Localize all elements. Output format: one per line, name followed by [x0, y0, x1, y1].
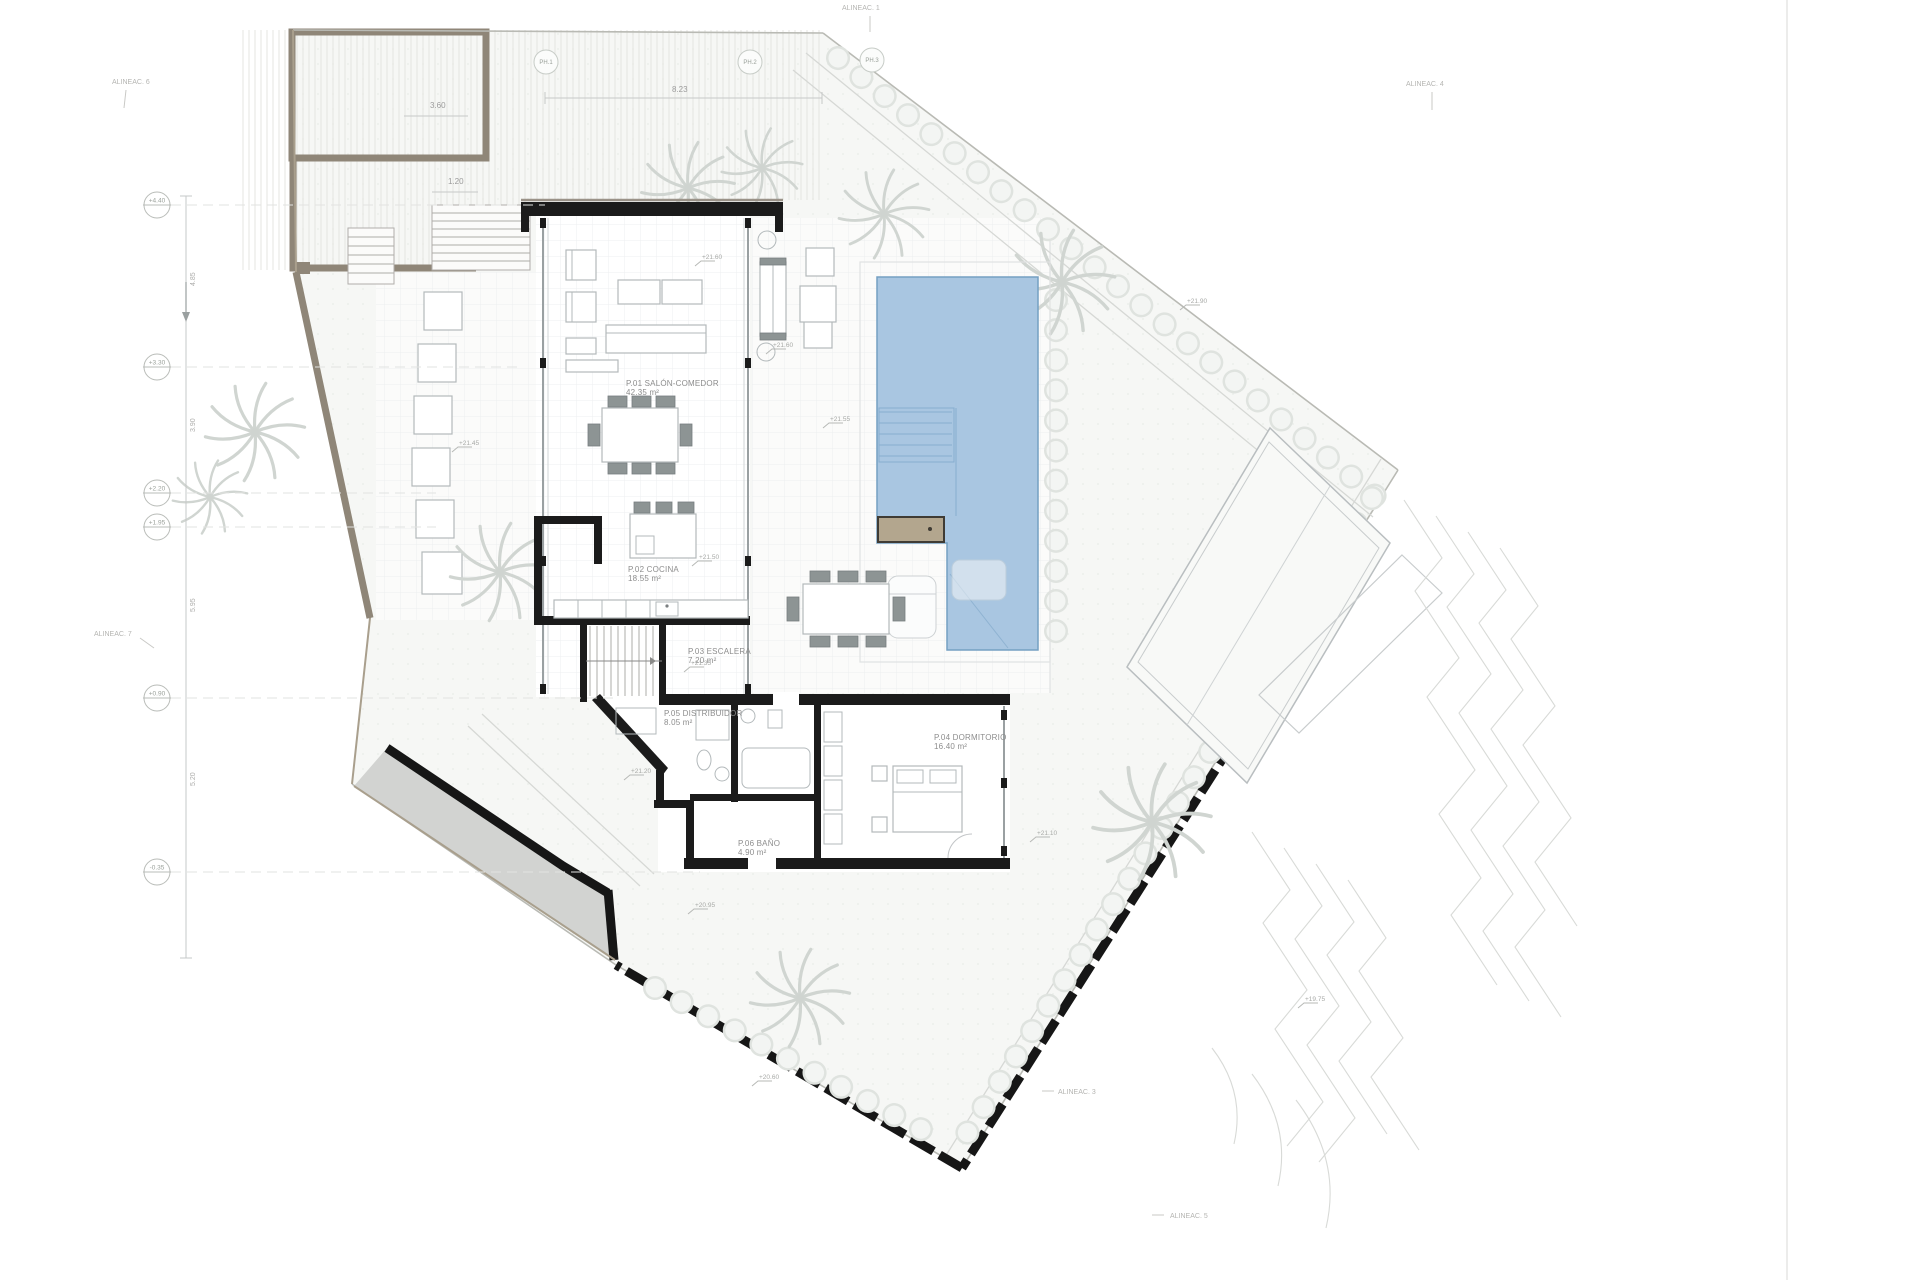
palm-icon: [205, 383, 304, 482]
dim-run-label: 5.20: [190, 772, 197, 786]
dim-top-label: 8.23: [672, 85, 688, 94]
spot-level-label: +21.60: [702, 254, 722, 261]
datum-level-label: -0.35: [150, 865, 165, 872]
datum-level-label: +0.90: [149, 691, 166, 698]
alignment-label: ALINEAC. 6: [112, 79, 150, 86]
alignment-label: ALINEAC. 4: [1406, 81, 1444, 88]
datum-level-label: +4.40: [149, 198, 166, 205]
north-tick: [182, 312, 190, 322]
dim-run-label: 5.95: [190, 598, 197, 612]
ramp-wall-end: [608, 890, 614, 960]
dim-court-label: 1.20: [448, 177, 464, 186]
spot-level-label: +21.20: [631, 768, 651, 775]
spot-level-label: +21.55: [830, 416, 850, 423]
dining-table-indoor: [588, 396, 692, 474]
spot-level-icon: [752, 1081, 772, 1086]
spot-level-label: +21.90: [1187, 298, 1207, 305]
pool-float: [952, 560, 1006, 600]
plan-sheet: 8.23 3.60 1.20 P.01 SALÓN-COMEDOR42.35 m…: [0, 0, 1920, 1280]
alignment-label: ALINEAC. 3: [1058, 1089, 1096, 1096]
floor-plan-canvas: 8.23 3.60 1.20 P.01 SALÓN-COMEDOR42.35 m…: [0, 0, 1920, 1280]
spot-level-label: +21.45: [459, 440, 479, 447]
dim-garage-label: 3.60: [430, 101, 446, 110]
plant-tag-label: PH.2: [743, 60, 757, 66]
pool-bench: [878, 517, 944, 542]
alignment-label: ALINEAC. 1: [842, 5, 880, 12]
stair-flight-wide: [432, 205, 530, 270]
dim-run-label: 3.90: [190, 418, 197, 432]
kitchen-counter: [554, 600, 748, 618]
plant-tag-label: PH.1: [539, 60, 553, 66]
alignment-label: ALINEAC. 7: [94, 631, 132, 638]
spot-level-label: +19.75: [1305, 996, 1325, 1003]
plant-tag-label: PH.3: [865, 58, 879, 64]
alignment-tick: [124, 90, 126, 108]
spot-level-label: +21.50: [699, 554, 719, 561]
spot-level-label: +21.10: [1037, 830, 1057, 837]
spot-level-label: +21.35: [691, 660, 711, 667]
spot-level-label: +20.60: [759, 1074, 779, 1081]
alignment-tick: [140, 638, 154, 648]
roof-canopy-edge: [521, 202, 783, 216]
stair-flight-narrow: [348, 228, 394, 284]
spot-level-icon: [1298, 1003, 1318, 1008]
palm-icon: [173, 460, 247, 534]
spot-level-label: +21.60: [773, 342, 793, 349]
dim-run-label: 4.85: [190, 272, 197, 286]
alignment-label: ALINEAC. 5: [1170, 1213, 1208, 1220]
bed: [893, 766, 962, 832]
datum-level-label: +2.20: [149, 486, 166, 493]
spot-level-label: +20.95: [695, 902, 715, 909]
datum-level-label: +1.95: [149, 520, 166, 527]
datum-level-label: +3.30: [149, 360, 166, 367]
